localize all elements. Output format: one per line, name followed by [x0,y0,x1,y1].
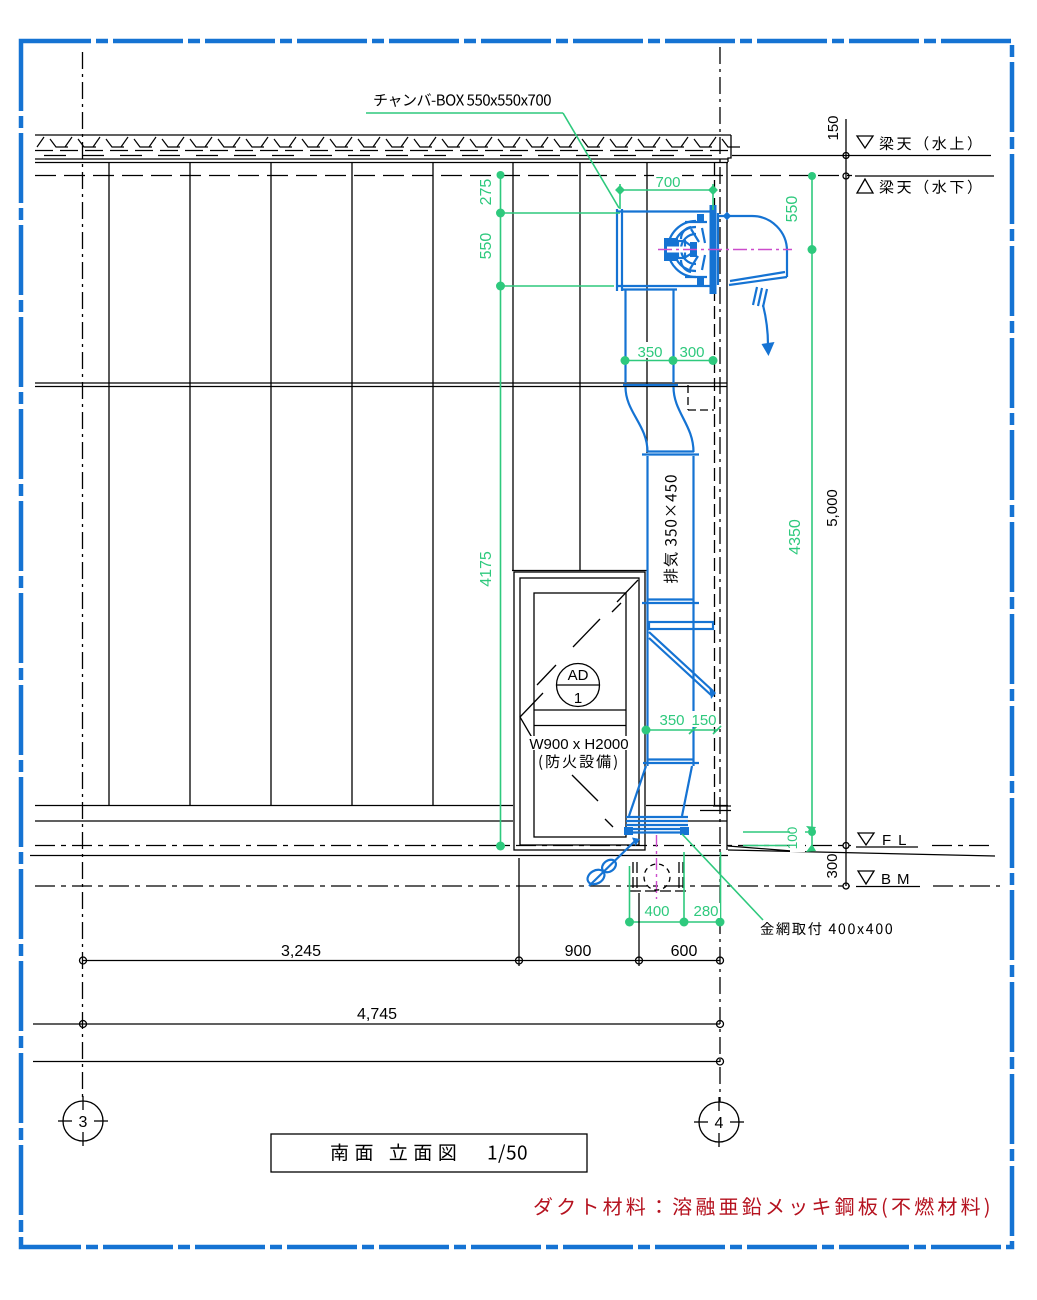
svg-text:W900 x H2000: W900 x H2000 [529,736,628,753]
svg-text:900: 900 [565,943,592,960]
svg-text:275: 275 [478,179,495,206]
svg-text:400: 400 [644,903,669,920]
svg-text:300: 300 [679,344,704,361]
svg-text:150: 150 [825,115,842,140]
svg-text:4175: 4175 [478,551,495,587]
svg-text:100: 100 [785,827,800,850]
svg-text:350: 350 [659,712,684,729]
svg-text:AD: AD [568,667,589,684]
svg-text:3: 3 [79,1114,88,1131]
svg-text:1: 1 [574,690,582,707]
svg-text:550: 550 [478,233,495,260]
svg-text:4350: 4350 [787,519,804,555]
svg-text:600: 600 [671,943,698,960]
svg-text:4: 4 [715,1115,724,1132]
svg-text:BM: BM [881,871,916,888]
svg-text:550: 550 [784,196,801,223]
svg-text:5,000: 5,000 [824,489,841,527]
svg-text:700: 700 [655,174,680,191]
svg-text:300: 300 [824,853,841,878]
svg-text:280: 280 [693,903,718,920]
svg-text:3,245: 3,245 [281,943,321,960]
svg-text:4,745: 4,745 [357,1006,397,1023]
svg-text:150: 150 [691,712,716,729]
svg-text:350: 350 [637,344,662,361]
